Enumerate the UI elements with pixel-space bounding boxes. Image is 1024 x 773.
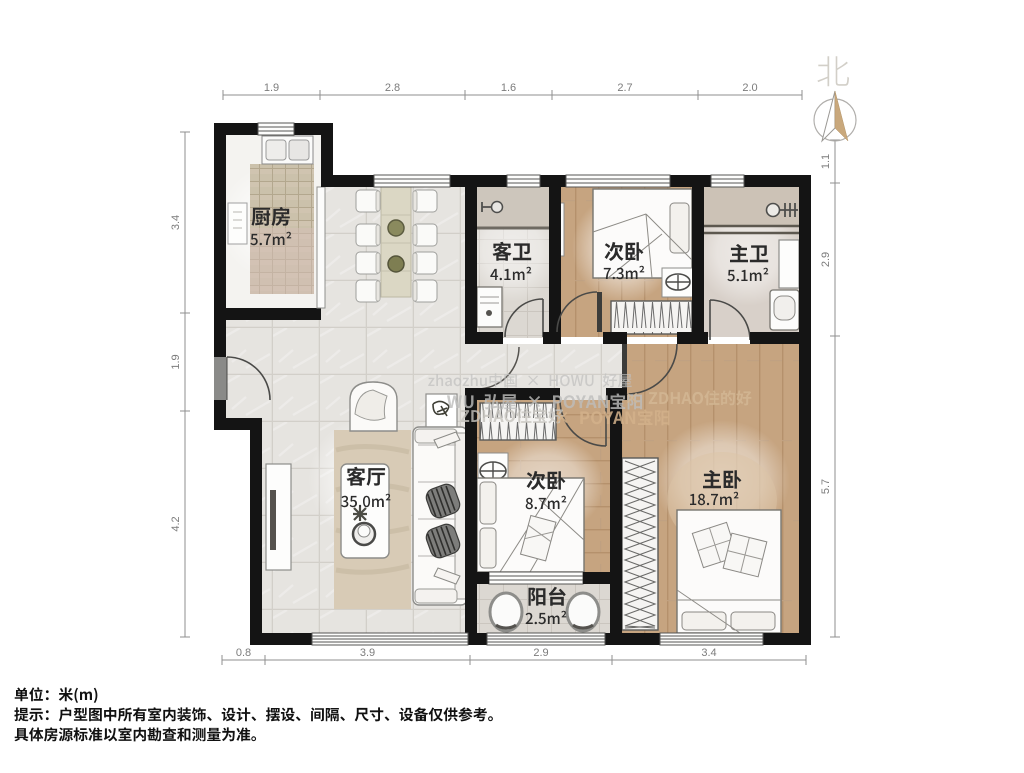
svg-text:2.0: 2.0 bbox=[742, 82, 757, 94]
svg-text:2.8: 2.8 bbox=[385, 82, 400, 94]
svg-text:1.9: 1.9 bbox=[170, 354, 182, 369]
svg-text:5.7: 5.7 bbox=[820, 479, 832, 494]
svg-text:2.7: 2.7 bbox=[617, 82, 632, 94]
svg-text:3.4: 3.4 bbox=[701, 647, 716, 659]
svg-text:1.6: 1.6 bbox=[501, 82, 516, 94]
svg-text:0.8: 0.8 bbox=[236, 647, 251, 659]
svg-text:2.9: 2.9 bbox=[533, 647, 548, 659]
svg-text:3.9: 3.9 bbox=[360, 647, 375, 659]
svg-text:1.1: 1.1 bbox=[820, 154, 832, 169]
svg-text:2.9: 2.9 bbox=[820, 252, 832, 267]
svg-text:1.9: 1.9 bbox=[264, 82, 279, 94]
svg-text:4.2: 4.2 bbox=[170, 516, 182, 531]
svg-text:3.4: 3.4 bbox=[170, 215, 182, 230]
